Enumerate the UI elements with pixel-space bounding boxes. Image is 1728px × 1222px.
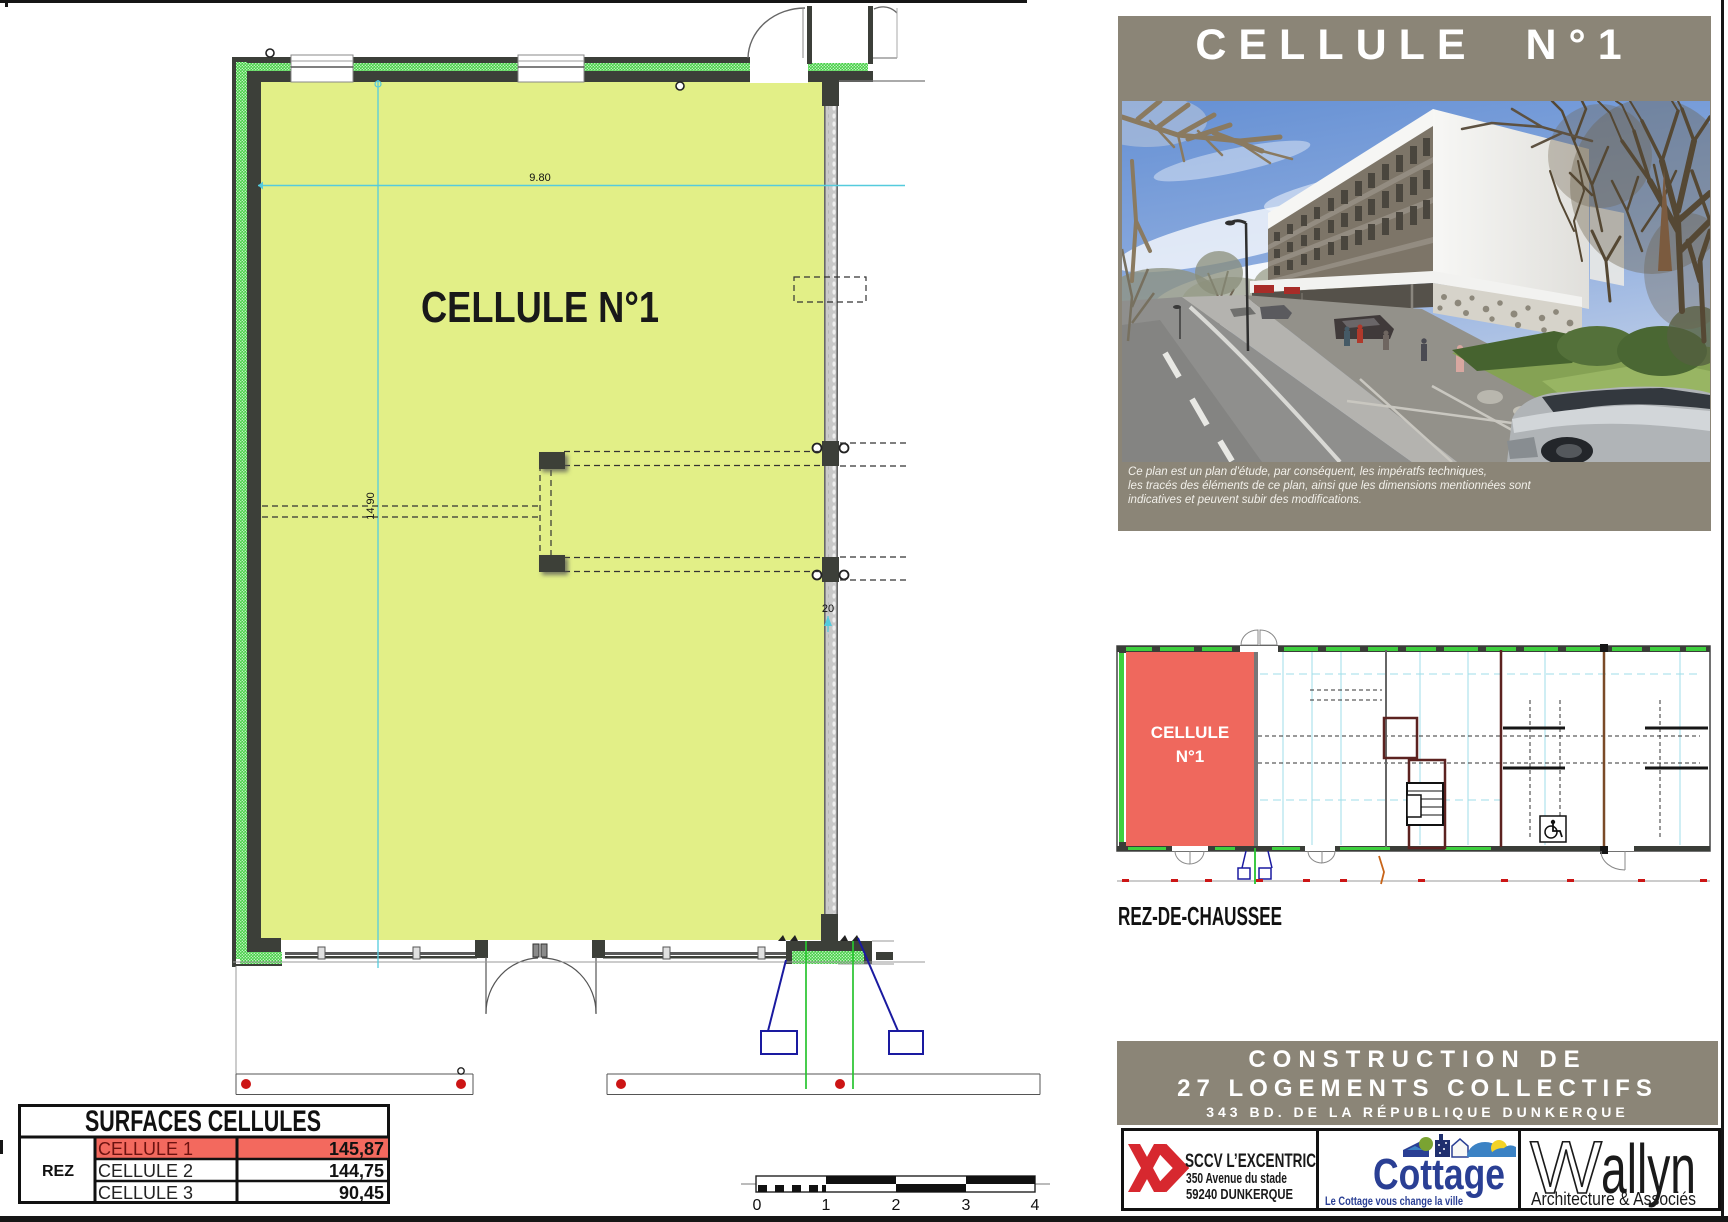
svg-text:SURFACES CELLULES: SURFACES CELLULES	[85, 1105, 321, 1138]
svg-text:N°1: N°1	[1176, 747, 1205, 766]
svg-text:CELLULE 3: CELLULE 3	[98, 1183, 193, 1203]
svg-text:0: 0	[753, 1197, 762, 1214]
svg-text:4: 4	[1031, 1197, 1040, 1214]
svg-text:1: 1	[822, 1197, 831, 1214]
svg-text:SCCV L’EXCENTRIC: SCCV L’EXCENTRIC	[1185, 1151, 1316, 1172]
svg-text:Cottage: Cottage	[1373, 1150, 1505, 1199]
svg-text:350 Avenue du stade: 350 Avenue du stade	[1186, 1171, 1287, 1187]
svg-text:CELLULE N°1: CELLULE N°1	[421, 283, 659, 332]
svg-text:CELLULE 2: CELLULE 2	[98, 1161, 193, 1181]
svg-text:Le Cottage vous change la vill: Le Cottage vous change la ville	[1325, 1194, 1463, 1208]
svg-text:3: 3	[962, 1197, 971, 1214]
svg-text:CELLULE 1: CELLULE 1	[98, 1139, 193, 1159]
svg-text:CELLULE: CELLULE	[1151, 723, 1229, 742]
svg-text:9.80: 9.80	[529, 172, 550, 184]
svg-text:20: 20	[822, 603, 834, 615]
svg-text:Architecture & Associés: Architecture & Associés	[1531, 1189, 1696, 1208]
svg-text:REZ-DE-CHAUSSEE: REZ-DE-CHAUSSEE	[1118, 901, 1282, 931]
svg-text:2: 2	[892, 1197, 901, 1214]
svg-text:90,45: 90,45	[339, 1183, 384, 1203]
svg-text:145,87: 145,87	[329, 1139, 384, 1159]
svg-text:59240 DUNKERQUE: 59240 DUNKERQUE	[1186, 1187, 1293, 1203]
svg-text:REZ: REZ	[42, 1163, 74, 1180]
svg-text:144,75: 144,75	[329, 1161, 384, 1181]
